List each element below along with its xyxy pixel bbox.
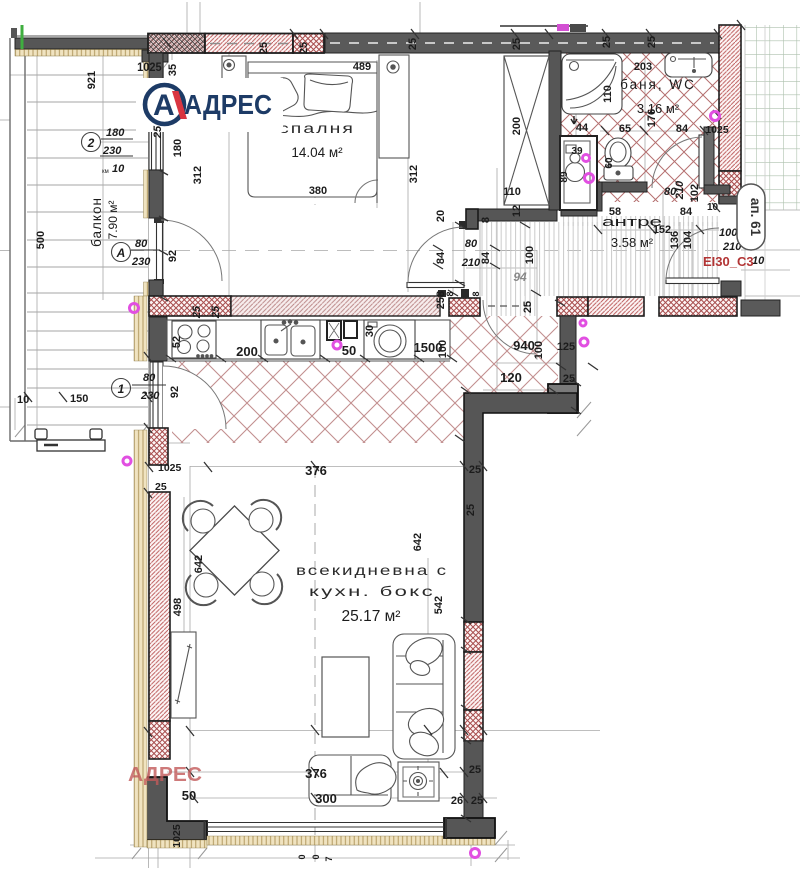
svg-text:всекидневна с: всекидневна с [296, 562, 448, 578]
svg-text:642: 642 [412, 533, 424, 551]
svg-text:25: 25 [155, 481, 167, 493]
svg-text:203: 203 [634, 61, 652, 73]
svg-text:940: 940 [513, 338, 535, 353]
svg-text:ЕI30_С3: ЕI30_С3 [703, 254, 754, 269]
svg-text:312: 312 [408, 165, 420, 183]
svg-text:50: 50 [182, 788, 196, 803]
svg-text:230: 230 [102, 145, 122, 157]
svg-text:92: 92 [169, 386, 181, 398]
svg-text:136: 136 [669, 231, 681, 249]
svg-text:км: км [102, 169, 109, 175]
svg-text:25: 25 [601, 36, 613, 48]
svg-text:180: 180 [172, 139, 184, 157]
svg-text:25: 25 [191, 305, 203, 319]
svg-text:25: 25 [152, 125, 164, 139]
svg-text:300: 300 [315, 791, 337, 806]
svg-text:7.90 м²: 7.90 м² [106, 201, 120, 240]
svg-text:376: 376 [305, 766, 327, 781]
svg-text:312: 312 [192, 166, 204, 184]
svg-text:542: 542 [433, 596, 445, 614]
svg-text:94: 94 [513, 270, 527, 284]
svg-text:89: 89 [559, 171, 570, 183]
svg-text:102: 102 [689, 184, 701, 202]
svg-text:А: А [153, 89, 175, 122]
svg-text:1025: 1025 [171, 824, 183, 848]
svg-text:376: 376 [305, 463, 327, 478]
svg-text:80: 80 [465, 238, 478, 250]
svg-text:3.58 м²: 3.58 м² [611, 235, 654, 250]
svg-text:84: 84 [435, 251, 447, 264]
svg-text:25: 25 [471, 795, 483, 807]
svg-text:баня, WC: баня, WC [620, 77, 696, 92]
svg-text:110: 110 [602, 85, 614, 103]
svg-text:10: 10 [112, 163, 125, 175]
svg-text:100: 100 [719, 227, 738, 239]
svg-text:1025: 1025 [137, 62, 162, 74]
svg-text:642: 642 [193, 555, 205, 573]
svg-text:230: 230 [131, 256, 151, 268]
svg-text:52: 52 [171, 336, 183, 348]
svg-text:60: 60 [604, 157, 615, 169]
svg-text:25: 25 [210, 305, 222, 319]
svg-text:100: 100 [437, 340, 449, 358]
svg-text:7: 7 [324, 856, 334, 861]
svg-text:25: 25 [522, 301, 534, 313]
svg-text:2: 2 [87, 136, 95, 150]
svg-text:921: 921 [86, 71, 98, 89]
svg-text:8: 8 [471, 291, 481, 296]
svg-text:8: 8 [445, 291, 455, 296]
svg-text:8: 8 [480, 217, 492, 223]
svg-text:25: 25 [469, 464, 481, 476]
svg-text:65: 65 [619, 123, 631, 135]
svg-text:180: 180 [106, 127, 125, 139]
svg-text:200: 200 [511, 117, 523, 135]
svg-text:14.04 м²: 14.04 м² [291, 145, 343, 160]
svg-text:200: 200 [236, 344, 258, 359]
svg-text:84: 84 [680, 206, 693, 218]
svg-text:10: 10 [17, 394, 29, 406]
svg-text:39: 39 [571, 146, 583, 157]
svg-text:500: 500 [35, 231, 47, 249]
svg-text:25: 25 [407, 38, 419, 50]
svg-text:10: 10 [707, 202, 719, 213]
svg-text:А: А [116, 246, 126, 260]
svg-text:26: 26 [451, 795, 463, 807]
svg-text:0: 0 [311, 854, 321, 859]
svg-text:25: 25 [298, 42, 310, 54]
svg-text:84: 84 [676, 123, 689, 135]
svg-text:210: 210 [674, 180, 686, 200]
svg-text:25: 25 [646, 36, 658, 48]
svg-text:104: 104 [682, 230, 694, 249]
svg-text:ап. 61: ап. 61 [748, 198, 763, 237]
svg-text:489: 489 [353, 61, 371, 73]
svg-text:110: 110 [503, 186, 521, 198]
svg-text:3.16 м²: 3.16 м² [637, 101, 680, 116]
svg-text:1: 1 [118, 382, 125, 396]
svg-text:0: 0 [297, 854, 307, 859]
svg-text:210: 210 [461, 257, 481, 269]
svg-text:балкон: балкон [89, 197, 104, 247]
svg-text:125: 125 [557, 341, 575, 353]
svg-text:25: 25 [258, 42, 270, 54]
svg-text:1025: 1025 [158, 462, 182, 474]
svg-text:20: 20 [435, 210, 447, 222]
svg-text:176: 176 [646, 109, 658, 127]
svg-text:100: 100 [533, 341, 545, 359]
svg-text:84: 84 [480, 251, 492, 264]
svg-text:12: 12 [511, 205, 523, 217]
svg-text:380: 380 [309, 185, 327, 197]
svg-text:92: 92 [167, 250, 179, 262]
svg-text:150: 150 [70, 393, 88, 405]
svg-text:25: 25 [563, 373, 575, 385]
svg-text:30: 30 [364, 325, 376, 337]
svg-text:120: 120 [500, 370, 522, 385]
svg-text:спалня: спалня [279, 120, 355, 136]
svg-text:АДРЕС: АДРЕС [184, 89, 272, 120]
svg-text:100: 100 [524, 246, 536, 264]
svg-text:25: 25 [469, 764, 481, 776]
svg-text:80: 80 [135, 238, 148, 250]
svg-text:35: 35 [167, 64, 179, 76]
svg-text:25.17 м²: 25.17 м² [342, 608, 401, 625]
svg-text:498: 498 [172, 598, 184, 616]
svg-text:25: 25 [465, 504, 477, 516]
svg-text:230: 230 [140, 390, 160, 402]
svg-text:1025: 1025 [705, 124, 729, 136]
svg-text:10: 10 [752, 255, 765, 267]
svg-text:50: 50 [342, 343, 356, 358]
svg-text:25: 25 [511, 38, 523, 50]
svg-text:кухн. бокс: кухн. бокс [309, 583, 435, 599]
svg-text:44: 44 [576, 122, 589, 134]
svg-text:АДРЕС: АДРЕС [128, 764, 202, 786]
